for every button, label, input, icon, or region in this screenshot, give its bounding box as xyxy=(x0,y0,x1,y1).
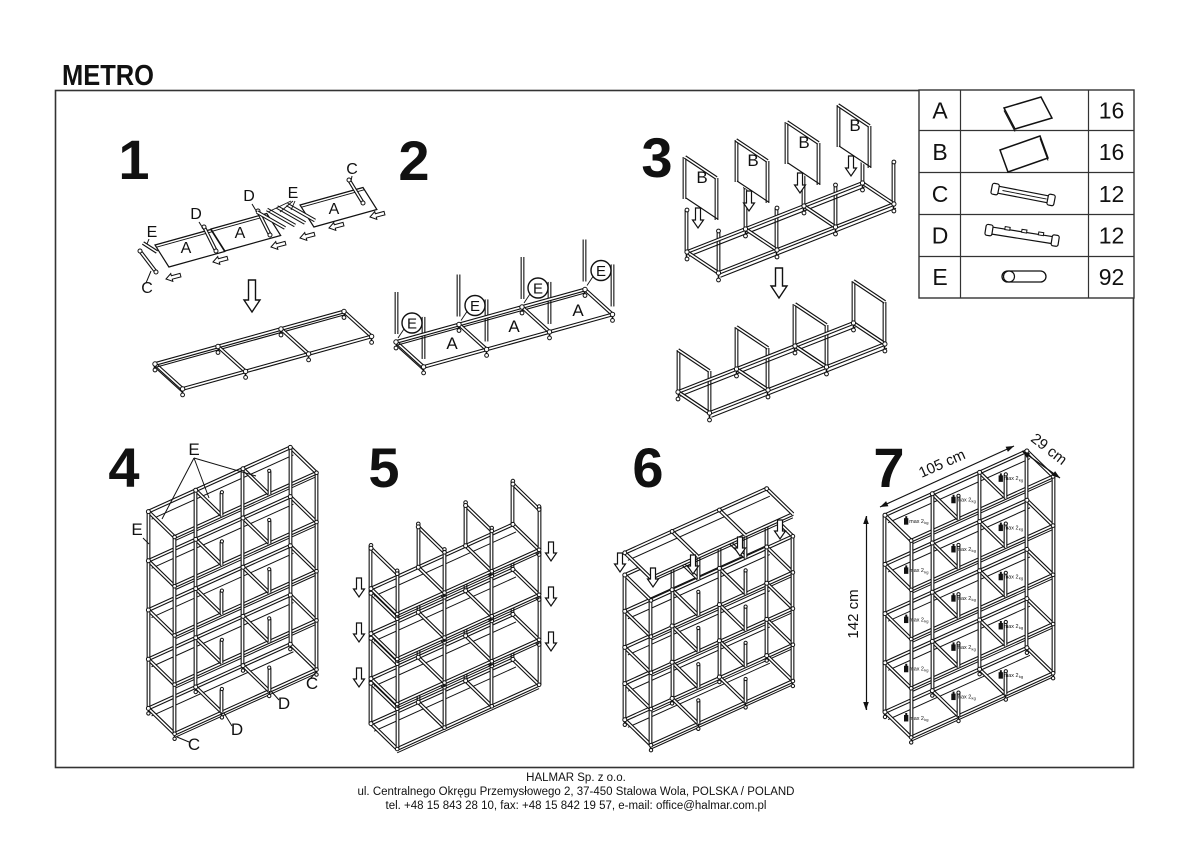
svg-text:B: B xyxy=(747,151,758,170)
svg-text:kg: kg xyxy=(924,717,928,722)
svg-text:kg: kg xyxy=(972,597,976,602)
svg-text:7: 7 xyxy=(873,436,904,499)
svg-text:E: E xyxy=(188,440,199,459)
svg-text:kg: kg xyxy=(972,499,976,504)
svg-text:max 2: max 2 xyxy=(957,547,972,553)
svg-text:C: C xyxy=(141,280,153,297)
svg-text:B: B xyxy=(849,116,860,135)
svg-text:B: B xyxy=(932,139,947,165)
svg-text:max 2: max 2 xyxy=(909,716,924,722)
svg-text:D: D xyxy=(243,188,255,205)
svg-text:max 2: max 2 xyxy=(957,645,972,651)
svg-text:kg: kg xyxy=(972,646,976,651)
svg-text:2: 2 xyxy=(398,129,429,192)
svg-text:4: 4 xyxy=(108,436,139,499)
svg-text:max 2: max 2 xyxy=(909,568,924,574)
svg-text:max 2: max 2 xyxy=(909,519,924,525)
svg-text:6: 6 xyxy=(632,436,663,499)
svg-text:A: A xyxy=(329,201,340,218)
svg-text:E: E xyxy=(407,316,417,333)
svg-text:E: E xyxy=(470,298,480,315)
svg-text:12: 12 xyxy=(1099,223,1125,249)
svg-text:kg: kg xyxy=(1019,576,1023,581)
svg-text:tel. +48 15 843 28 10, fax: +4: tel. +48 15 843 28 10, fax: +48 15 842 1… xyxy=(386,800,767,812)
svg-text:5: 5 xyxy=(368,436,399,499)
svg-text:A: A xyxy=(508,317,520,336)
svg-text:E: E xyxy=(533,281,543,298)
svg-text:E: E xyxy=(147,224,158,241)
svg-text:A: A xyxy=(446,334,458,353)
svg-text:kg: kg xyxy=(924,569,928,574)
svg-text:kg: kg xyxy=(972,696,976,701)
svg-text:3: 3 xyxy=(641,126,672,189)
svg-text:142 cm: 142 cm xyxy=(845,589,862,638)
svg-text:16: 16 xyxy=(1099,139,1125,165)
svg-text:D: D xyxy=(190,206,202,223)
svg-text:kg: kg xyxy=(1019,477,1023,482)
svg-text:C: C xyxy=(188,735,200,754)
svg-text:A: A xyxy=(932,98,948,124)
svg-text:METRO: METRO xyxy=(62,60,154,92)
svg-text:D: D xyxy=(231,720,243,739)
svg-text:kg: kg xyxy=(972,548,976,553)
svg-text:E: E xyxy=(932,264,947,290)
svg-text:max 2: max 2 xyxy=(957,596,972,602)
svg-text:max 2: max 2 xyxy=(909,617,924,623)
svg-text:max 2: max 2 xyxy=(1004,575,1019,581)
svg-text:max 2: max 2 xyxy=(1004,476,1019,482)
svg-text:max 2: max 2 xyxy=(1004,525,1019,531)
svg-text:max 2: max 2 xyxy=(957,694,972,700)
svg-text:max 2: max 2 xyxy=(1004,673,1019,679)
svg-text:kg: kg xyxy=(924,520,928,525)
svg-text:C: C xyxy=(346,161,358,178)
svg-text:HALMAR Sp. z o.o.: HALMAR Sp. z o.o. xyxy=(526,772,626,784)
svg-text:E: E xyxy=(596,263,606,280)
svg-text:92: 92 xyxy=(1099,264,1125,290)
svg-text:1: 1 xyxy=(118,128,149,191)
svg-text:max 2: max 2 xyxy=(909,667,924,673)
svg-text:B: B xyxy=(696,168,707,187)
svg-text:A: A xyxy=(235,225,246,242)
svg-text:ul. Centralnego Okręgu Przemys: ul. Centralnego Okręgu Przemysłowego 2, … xyxy=(357,786,794,798)
svg-text:kg: kg xyxy=(1019,674,1023,679)
svg-text:max 2: max 2 xyxy=(957,498,972,504)
svg-text:D: D xyxy=(278,694,290,713)
svg-text:kg: kg xyxy=(1019,527,1023,532)
svg-text:C: C xyxy=(932,181,949,207)
svg-text:E: E xyxy=(288,185,299,202)
svg-text:D: D xyxy=(932,223,949,249)
svg-text:E: E xyxy=(131,520,142,539)
svg-text:A: A xyxy=(572,301,584,320)
svg-text:max 2: max 2 xyxy=(1004,624,1019,630)
svg-text:A: A xyxy=(181,240,192,257)
svg-text:B: B xyxy=(798,133,809,152)
svg-text:kg: kg xyxy=(924,668,928,673)
svg-text:16: 16 xyxy=(1099,98,1125,124)
svg-text:kg: kg xyxy=(1019,625,1023,630)
svg-text:kg: kg xyxy=(924,619,928,624)
svg-text:12: 12 xyxy=(1099,181,1125,207)
